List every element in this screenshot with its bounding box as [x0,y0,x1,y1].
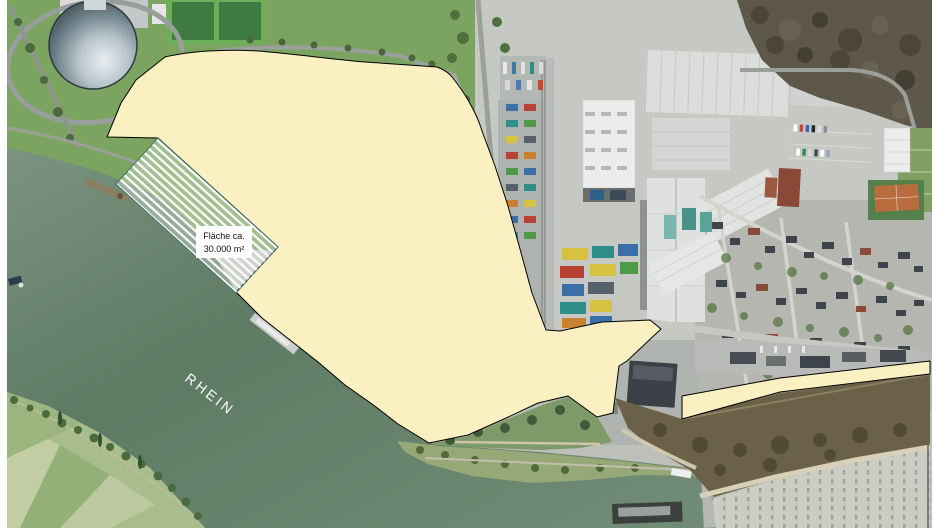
area-label: Fläche ca. 30.000 m² [196,226,252,258]
aerial-planning-map: Fläche ca. 30.000 m² RHEIN [0,0,940,528]
gas-holder [49,1,137,89]
warehouse-hall [583,100,635,202]
area-label-line2: 30.000 m² [204,244,245,254]
area-label-line1: Fläche ca. [203,231,245,241]
map-canvas: Fläche ca. 30.000 m² RHEIN [0,0,940,528]
tennis-court [874,184,919,212]
parking-lot [785,118,874,176]
harbor-barge [612,502,683,524]
